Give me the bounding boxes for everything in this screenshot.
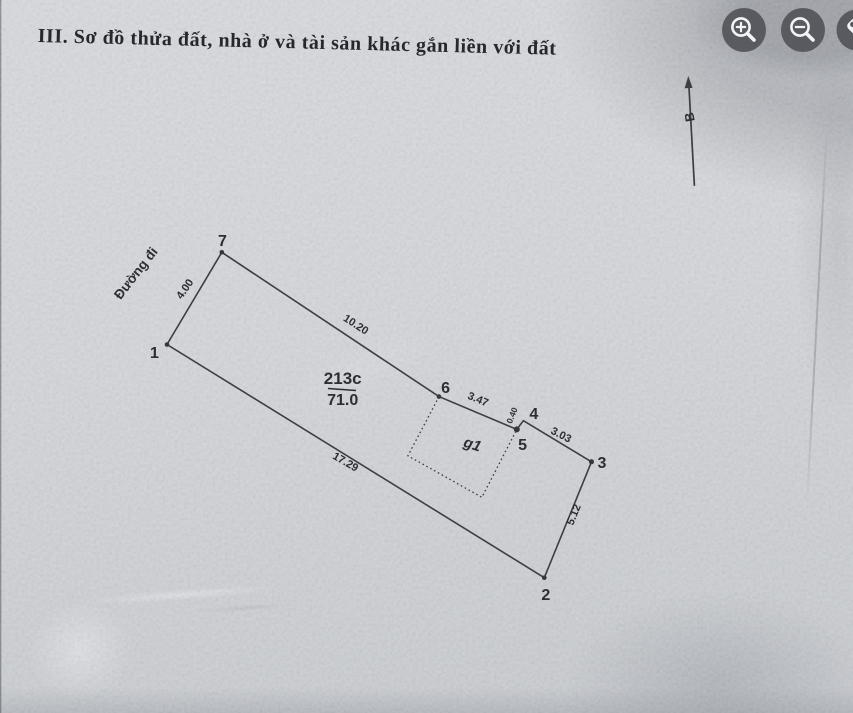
svg-text:Đường đi: Đường đi [111, 244, 161, 302]
svg-text:B: B [681, 111, 697, 123]
svg-text:71.0: 71.0 [327, 392, 358, 409]
svg-text:g1: g1 [460, 434, 483, 456]
svg-text:3: 3 [598, 455, 607, 472]
svg-text:4.00: 4.00 [174, 277, 196, 301]
svg-text:7: 7 [218, 233, 227, 250]
svg-text:6: 6 [441, 380, 450, 397]
svg-text:3.47: 3.47 [466, 390, 490, 409]
svg-text:2: 2 [541, 587, 550, 604]
svg-text:4: 4 [529, 406, 538, 423]
svg-text:1: 1 [150, 345, 159, 362]
svg-text:5.12: 5.12 [565, 503, 584, 527]
svg-text:5: 5 [518, 437, 527, 454]
svg-text:213c: 213c [324, 369, 362, 388]
svg-text:0.40: 0.40 [504, 406, 520, 425]
